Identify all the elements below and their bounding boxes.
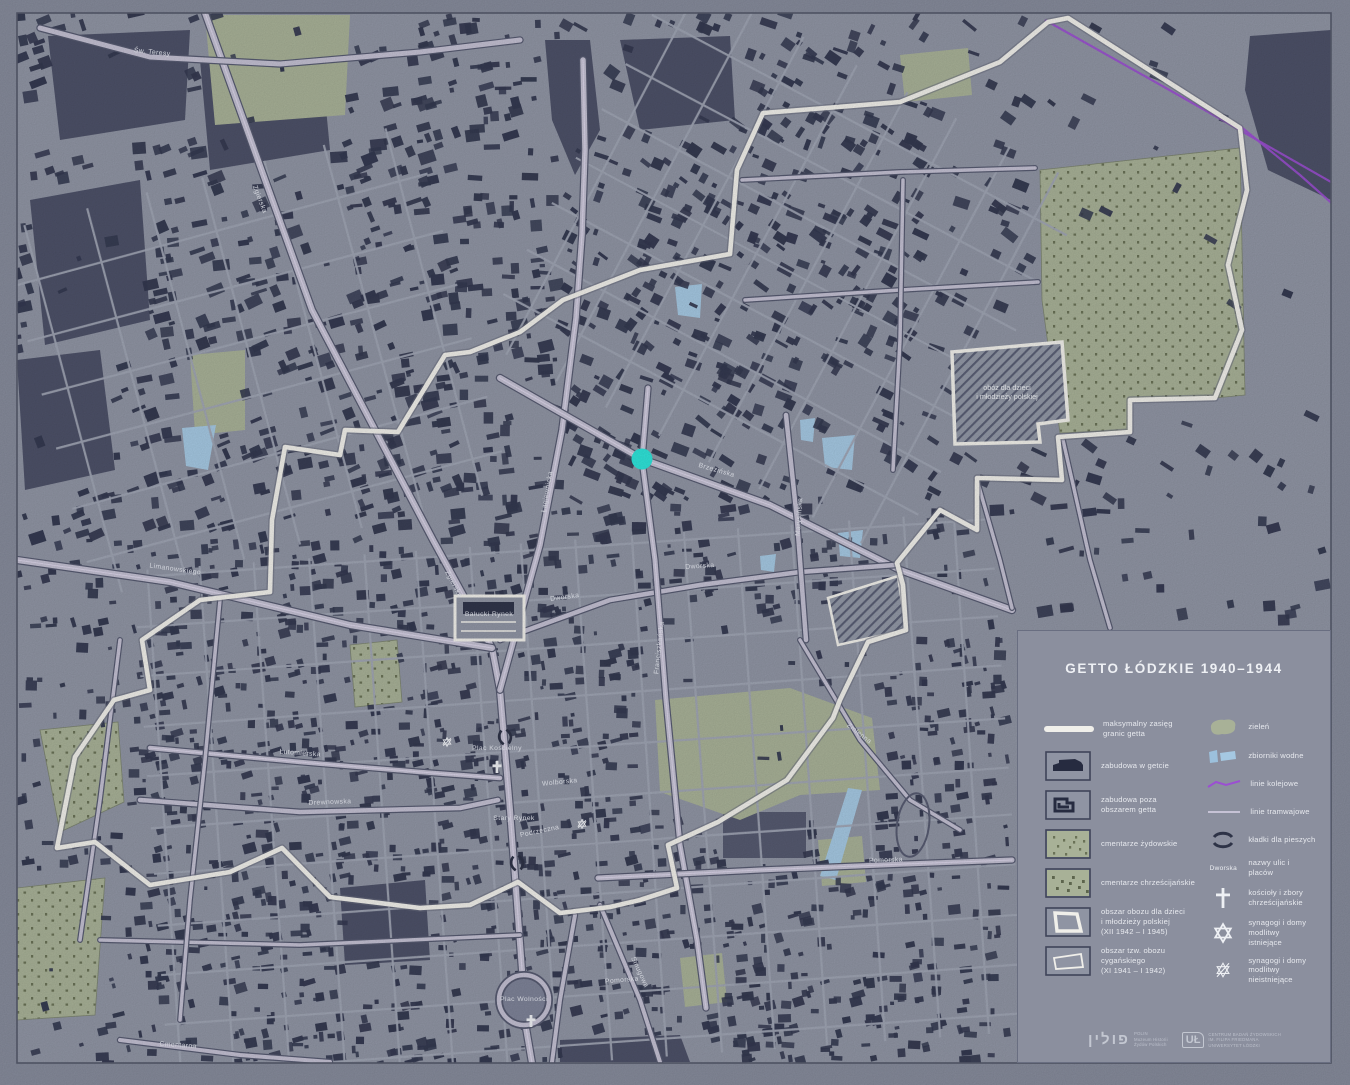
legend-title: GETTO ŁÓDZKIE 1940–1944 [1018,661,1330,676]
street-name-icon: Dworska [1206,865,1240,872]
gypsy-camp-icon [1044,946,1092,976]
legend-item-greenery: zieleń [1206,716,1316,738]
christian-cemetery-icon [1044,868,1092,898]
cbz-logo: UŁCENTRUM BADAŃ ŻYDOWSKICHIM. FILIPA FRI… [1182,1032,1281,1048]
legend-item-label: synagogi i domy modlitwy nieistniejące [1248,956,1316,986]
legend-item-label: cmentarze chrześcijańskie [1101,878,1195,888]
legend-right-column: zieleńzbiorniki wodnelinie kolejowelinie… [1206,716,1316,993]
polin-glyphs: פולין [1088,1031,1130,1048]
buildings-in-ghetto-icon [1044,751,1092,781]
legend-item-church-cross: kościoły i zbory chrześcijańskie [1206,886,1316,910]
ghetto-boundary-icon [1044,724,1094,734]
water-icon [1206,747,1240,765]
cbz-text: CENTRUM BADAŃ ŻYDOWSKICHIM. FILIPA FRIED… [1208,1032,1281,1048]
legend-item-label: linie kolejowe [1250,779,1298,789]
credit-logos: פוליןPOLINMuzeum HistoriiŻydów PolskichU… [1088,1031,1281,1048]
footbridge-icon [1206,830,1240,850]
legend-left-column: maksymalny zasięg granic gettazabudowa w… [1044,716,1198,993]
legend-item-tramway: linie tramwajowe [1206,802,1316,822]
synagogue-gone-icon [1206,959,1240,981]
legend-item-label: zabudowa w getcie [1101,761,1169,771]
legend-item-ghetto-boundary: maksymalny zasięg granic getta [1044,716,1198,742]
legend-item-label: zabudowa poza obszarem getta [1101,795,1157,815]
legend-item-label: nazwy ulic i placów [1248,858,1316,878]
legend-item-christian-cemetery: cmentarze chrześcijańskie [1044,868,1198,898]
legend-item-buildings-in-ghetto: zabudowa w getcie [1044,751,1198,781]
legend-item-label: zbiorniki wodne [1248,751,1303,761]
railway-icon [1206,777,1242,791]
greenery-icon [1206,716,1240,738]
legend-item-water: zbiorniki wodne [1206,746,1316,766]
legend-panel: GETTO ŁÓDZKIE 1940–1944 maksymalny zasię… [1017,630,1331,1063]
legend-columns: maksymalny zasięg granic gettazabudowa w… [1018,716,1330,993]
legend-item-label: obszar tzw. obozu cygańskiego (XI 1941 –… [1101,946,1165,976]
legend-item-synagogue-existing: synagogi i domy modlitwy istniejące [1206,918,1316,948]
legend-item-label: linie tramwajowe [1250,807,1309,817]
tramway-icon [1206,808,1242,816]
polin-logo: פוליןPOLINMuzeum HistoriiŻydów Polskich [1088,1031,1168,1048]
legend-item-synagogue-gone: synagogi i domy modlitwy nieistniejące [1206,956,1316,986]
ul-mark: UŁ [1182,1032,1205,1048]
legend-item-children-camp: obszar obozu dla dzieci i młodzieży pols… [1044,907,1198,937]
church-cross-icon [1206,886,1240,910]
legend-item-label: kładki dla pieszych [1248,835,1315,845]
legend-item-railway: linie kolejowe [1206,774,1316,794]
map-document: Św. TeresyZgierskaZgierskaŁagiewnickaBrz… [0,0,1350,1085]
legend-item-label: obszar obozu dla dzieci i młodzieży pols… [1101,907,1185,937]
legend-item-gypsy-camp: obszar tzw. obozu cygańskiego (XI 1941 –… [1044,946,1198,976]
polin-text: POLINMuzeum HistoriiŻydów Polskich [1134,1031,1168,1047]
legend-item-footbridge: kładki dla pieszych [1206,830,1316,850]
children-camp-icon [1044,907,1092,937]
synagogue-existing-icon [1206,921,1240,945]
legend-item-label: cmentarze żydowskie [1101,839,1177,849]
legend-item-label: zieleń [1248,722,1269,732]
buildings-outside-icon [1044,790,1092,820]
legend-item-label: maksymalny zasięg granic getta [1103,719,1173,739]
jewish-cemetery-icon [1044,829,1092,859]
legend-item-buildings-outside: zabudowa poza obszarem getta [1044,790,1198,820]
legend-item-label: synagogi i domy modlitwy istniejące [1248,918,1316,948]
legend-item-street-name: Dworskanazwy ulic i placów [1206,858,1316,878]
legend-item-label: kościoły i zbory chrześcijańskie [1248,888,1303,908]
legend-item-jewish-cemetery: cmentarze żydowskie [1044,829,1198,859]
